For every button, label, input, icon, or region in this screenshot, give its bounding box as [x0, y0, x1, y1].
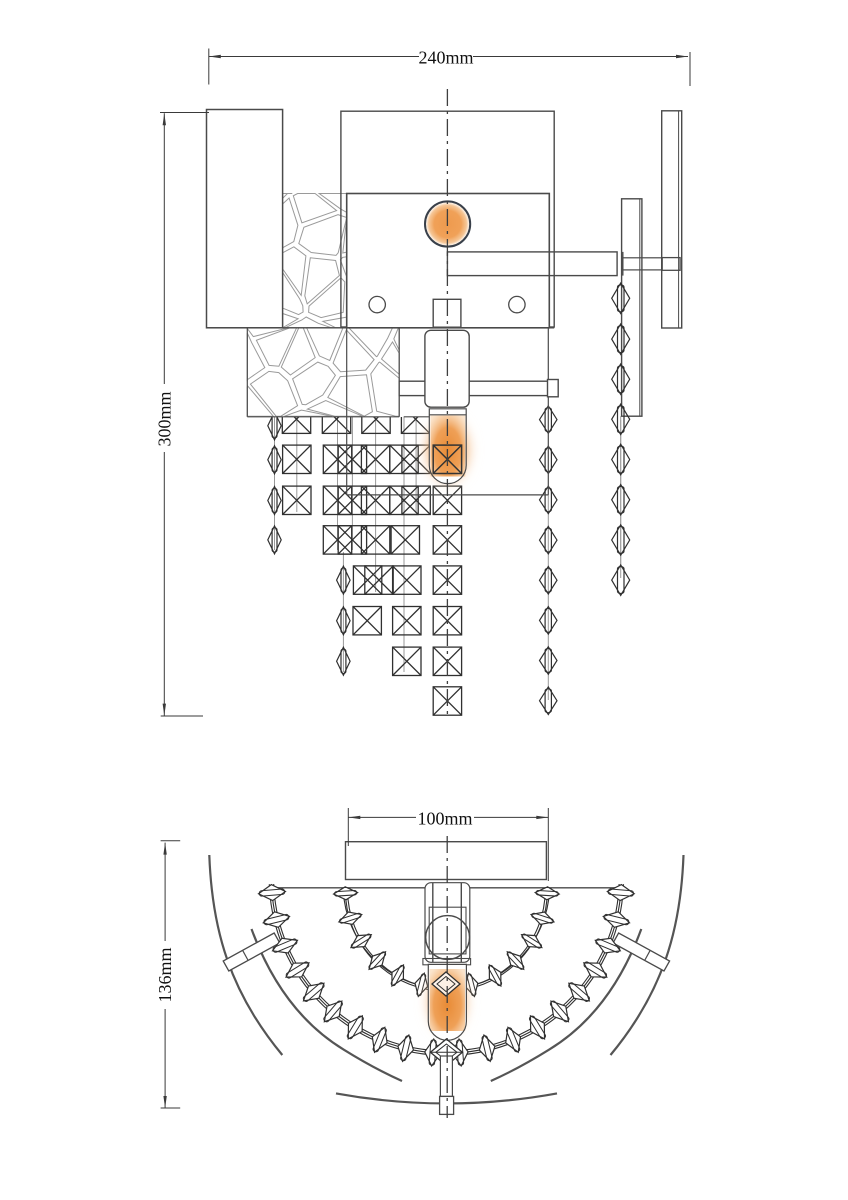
- svg-text:136mm: 136mm: [155, 947, 175, 1002]
- svg-text:300mm: 300mm: [154, 391, 174, 446]
- svg-text:240mm: 240mm: [418, 48, 473, 68]
- svg-text:100mm: 100mm: [417, 808, 472, 828]
